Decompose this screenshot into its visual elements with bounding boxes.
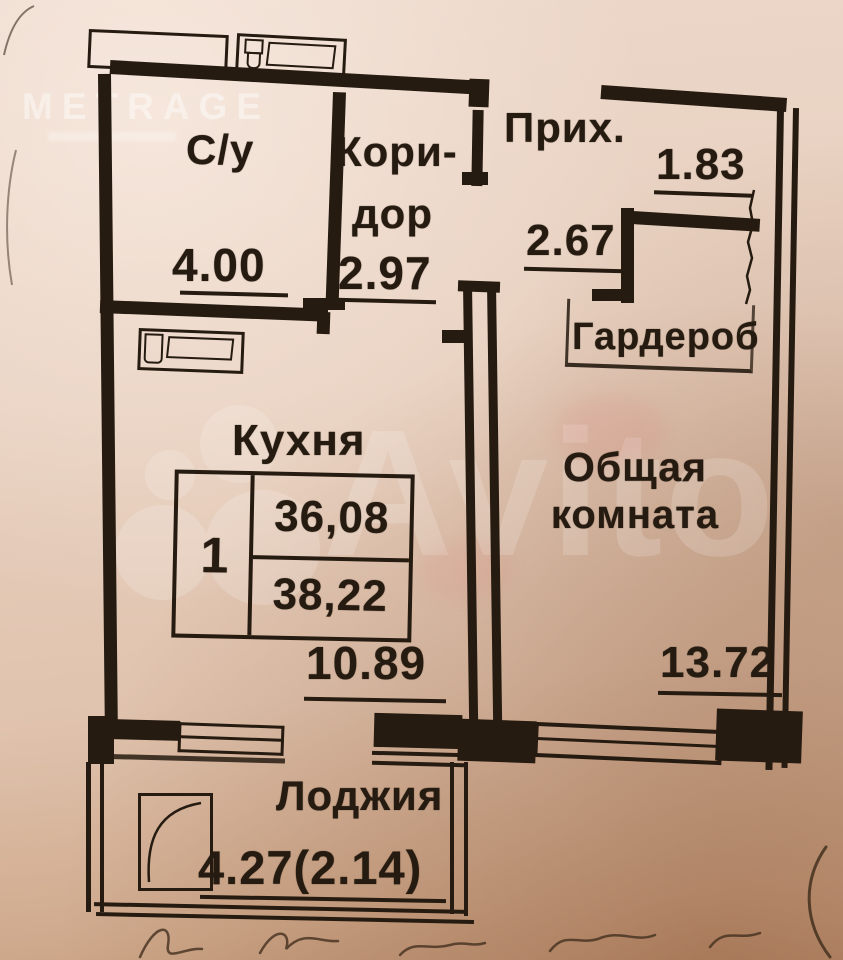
room-dim-hallway: 1.83 xyxy=(656,140,746,190)
balcony-door-solid xyxy=(112,719,181,741)
room-dim-bathroom: 4.00 xyxy=(172,238,266,292)
room-dim-corridor: 2.97 xyxy=(338,246,432,300)
wall-living-bottom-right-corner xyxy=(715,709,803,764)
handwriting-signature xyxy=(110,895,843,960)
room-dim-living-underline xyxy=(658,691,782,697)
handwriting-parenthesis xyxy=(782,845,842,960)
room-label-corridor-line1: Кори- xyxy=(336,128,458,176)
room-dim-living: 13.72 xyxy=(660,638,775,688)
loggia-wall-left-outer xyxy=(86,762,91,912)
wall-corridor-hallway-foot xyxy=(462,172,488,185)
floorplan-scan: METRAGE Avito xyxy=(0,0,843,960)
pen-stroke-topleft xyxy=(0,0,40,300)
bathtub-symbol xyxy=(266,42,337,69)
wall-kitchen-door-flange xyxy=(442,330,464,343)
info-table-value-bottom: 38,22 xyxy=(256,569,405,622)
wall-top-hallway xyxy=(601,85,788,112)
living-room-window xyxy=(533,722,722,766)
room-dim-bathroom-underline xyxy=(180,291,288,298)
info-table-room-count: 1 xyxy=(184,526,245,585)
room-label-loggia: Лоджия xyxy=(276,772,443,820)
room-label-living-line2: комната xyxy=(545,493,725,538)
watermark-metrage-subtitle xyxy=(48,132,176,141)
room-label-corridor-line2: дор xyxy=(352,190,433,238)
info-table-hline xyxy=(253,555,409,562)
wall-right-inner xyxy=(781,108,799,768)
wall-bathroom-bottom xyxy=(100,300,328,322)
wall-kitchen-living-cap xyxy=(458,280,500,292)
kitchen-fixture-band xyxy=(137,328,245,374)
sink-symbol xyxy=(143,333,163,364)
room-label-hallway: Прих. xyxy=(504,104,626,152)
room-dim-hallway-2-underline xyxy=(524,267,624,274)
counter-symbol xyxy=(166,336,234,360)
room-dim-loggia: 4.27(2.14) xyxy=(198,840,422,895)
info-table-value-top: 36,08 xyxy=(257,491,406,544)
loggia-window xyxy=(178,722,285,756)
room-dim-kitchen: 10.89 xyxy=(306,636,426,690)
loggia-wall-right-inner xyxy=(450,762,454,914)
room-label-bathroom: С/у xyxy=(186,126,254,174)
room-dim-hallway-2: 2.67 xyxy=(526,216,616,266)
info-table: 1 36,08 38,22 xyxy=(171,470,414,643)
loggia-sill-line xyxy=(90,753,285,763)
wall-bathroom-bottom-stub xyxy=(317,312,331,334)
room-label-living-line1: Общая xyxy=(545,444,725,491)
wall-bottom-mid-pier xyxy=(374,713,463,749)
room-label-living: Общая комната xyxy=(545,444,725,538)
room-label-kitchen: Кухня xyxy=(232,416,366,466)
wall-living-bottom-left xyxy=(457,719,536,764)
watermark-metrage: METRAGE xyxy=(22,86,270,128)
pier-line-1 xyxy=(372,751,462,757)
room-dim-kitchen-underline xyxy=(304,697,446,703)
sliding-door-zigzag xyxy=(738,190,768,305)
loggia-wall-left-inner xyxy=(100,764,104,912)
wall-corridor-hallway-top xyxy=(469,79,490,108)
room-label-wardrobe: Гардероб xyxy=(572,316,760,359)
loggia-wall-right-outer xyxy=(464,762,468,916)
